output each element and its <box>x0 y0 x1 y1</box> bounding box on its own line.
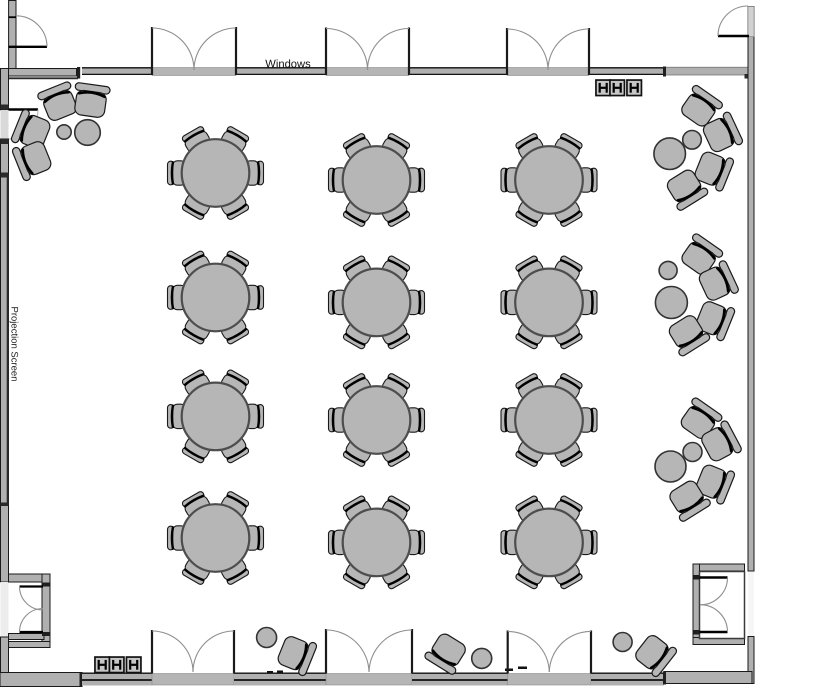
svg-text:Projection Screen: Projection Screen <box>9 307 20 382</box>
svg-text:Windows: Windows <box>265 59 311 71</box>
